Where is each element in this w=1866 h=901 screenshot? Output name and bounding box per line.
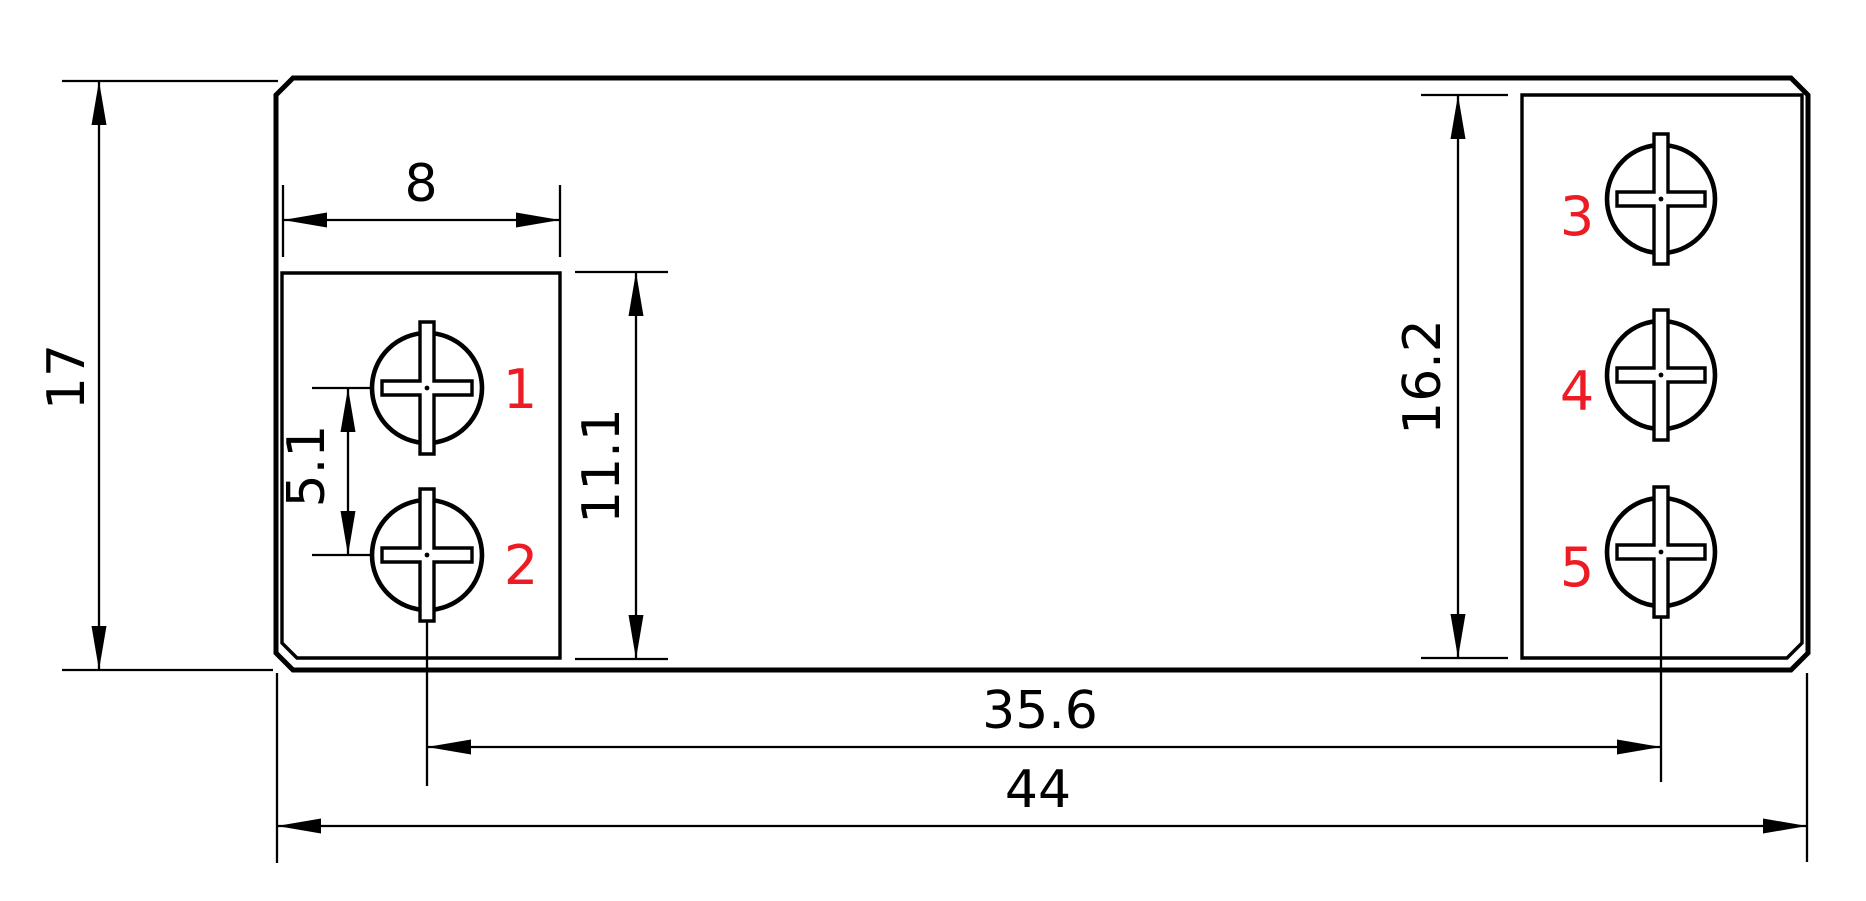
arrowhead-left bbox=[277, 819, 321, 834]
dimension-label-44: 44 bbox=[1005, 760, 1071, 820]
screw-center-dot bbox=[425, 386, 430, 391]
screw-center-dot bbox=[1659, 550, 1664, 555]
screw-center-dot bbox=[1659, 197, 1664, 202]
arrowhead-right bbox=[1617, 740, 1661, 755]
dimension-label-17: 17 bbox=[37, 344, 97, 410]
dimension-label-8: 8 bbox=[404, 154, 437, 214]
terminal-number-5: 5 bbox=[1560, 536, 1594, 599]
screw-center-dot bbox=[1659, 373, 1664, 378]
arrowhead-left bbox=[427, 740, 471, 755]
terminal-number-4: 4 bbox=[1560, 360, 1594, 423]
dimension-label-5-1: 5.1 bbox=[277, 425, 337, 508]
arrowhead-down bbox=[92, 626, 107, 670]
dimension-drawing: 17 8 5.1 11.1 16.2 bbox=[0, 0, 1866, 901]
terminal-number-3: 3 bbox=[1560, 185, 1594, 248]
dimension-overall-height: 17 bbox=[37, 81, 278, 670]
terminal-number-1: 1 bbox=[503, 358, 537, 421]
screw-center-dot bbox=[425, 553, 430, 558]
dimension-label-11-1: 11.1 bbox=[572, 408, 632, 524]
dimension-label-16-2: 16.2 bbox=[1393, 319, 1453, 435]
drawing-canvas: 17 8 5.1 11.1 16.2 bbox=[0, 0, 1866, 901]
terminal-number-2: 2 bbox=[504, 534, 538, 597]
arrowhead-up bbox=[92, 81, 107, 125]
dimension-label-35-6: 35.6 bbox=[982, 681, 1098, 741]
arrowhead-right bbox=[1763, 819, 1807, 834]
